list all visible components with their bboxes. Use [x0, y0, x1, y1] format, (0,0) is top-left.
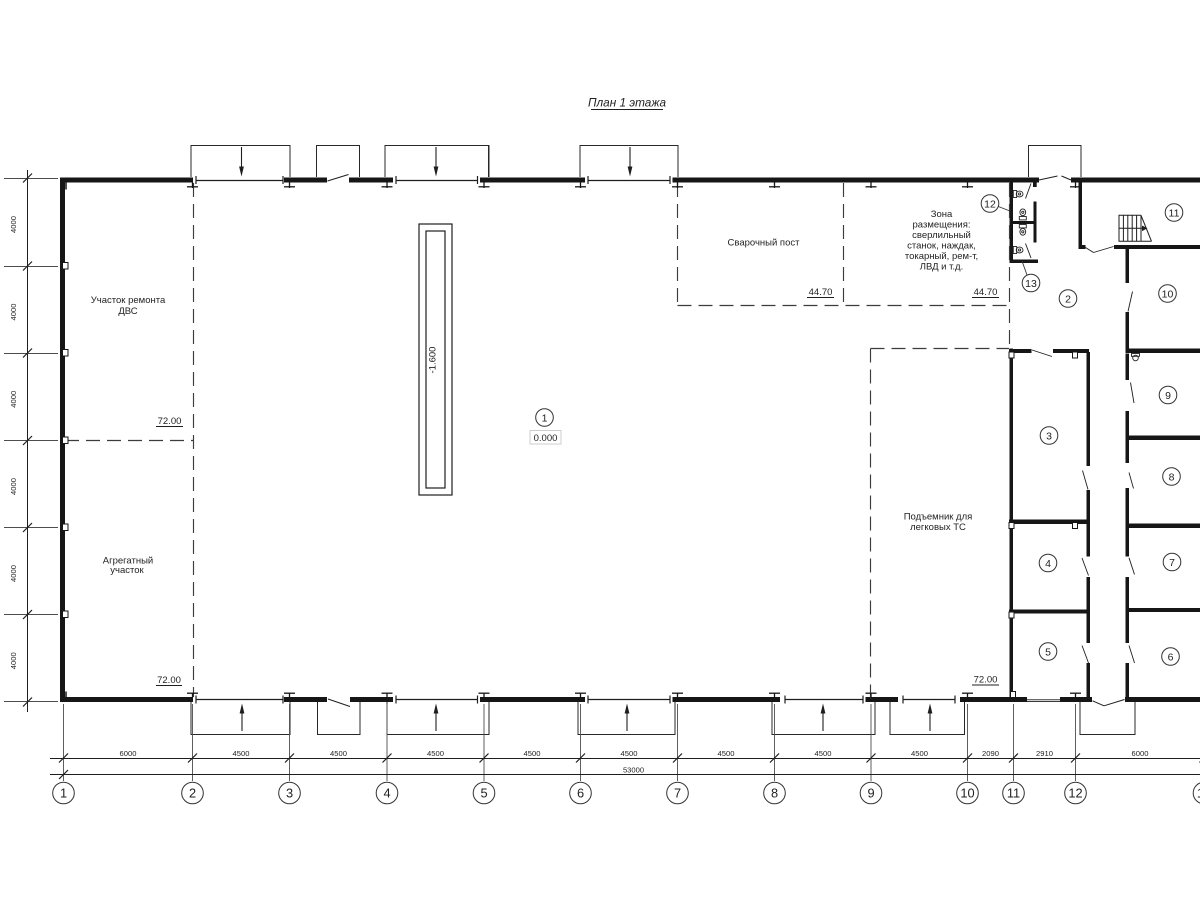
svg-text:72.00: 72.00 [158, 416, 182, 427]
svg-text:ДВС: ДВС [118, 306, 137, 317]
svg-text:4500: 4500 [233, 749, 250, 758]
svg-text:12: 12 [1068, 785, 1082, 800]
svg-text:3: 3 [1046, 430, 1052, 442]
svg-text:10: 10 [1162, 288, 1174, 300]
svg-text:4500: 4500 [815, 749, 832, 758]
svg-text:44.70: 44.70 [809, 287, 833, 298]
svg-text:6000: 6000 [1132, 749, 1149, 758]
svg-text:11: 11 [1007, 785, 1020, 800]
svg-text:4000: 4000 [9, 216, 18, 233]
svg-text:44.70: 44.70 [974, 287, 998, 298]
svg-text:1: 1 [60, 785, 67, 800]
svg-text:2910: 2910 [1036, 749, 1053, 758]
svg-text:10: 10 [960, 785, 974, 800]
svg-text:11: 11 [1169, 207, 1180, 219]
svg-text:2: 2 [189, 785, 196, 800]
svg-text:53000: 53000 [623, 766, 644, 775]
svg-text:Зона: Зона [931, 209, 953, 220]
svg-text:4000: 4000 [9, 565, 18, 582]
svg-text:5: 5 [1045, 646, 1051, 658]
svg-text:0.000: 0.000 [534, 433, 558, 444]
svg-text:4500: 4500 [911, 749, 928, 758]
svg-text:4000: 4000 [9, 304, 18, 321]
svg-text:легковых ТС: легковых ТС [910, 522, 966, 533]
svg-text:4000: 4000 [9, 478, 18, 495]
svg-text:4500: 4500 [330, 749, 347, 758]
svg-text:6: 6 [1168, 651, 1174, 663]
svg-text:5: 5 [480, 785, 487, 800]
svg-text:72.00: 72.00 [157, 675, 181, 686]
svg-text:8: 8 [1169, 471, 1175, 483]
svg-text:72.00: 72.00 [974, 675, 998, 686]
svg-text:Сварочный пост: Сварочный пост [728, 238, 801, 249]
svg-text:4500: 4500 [718, 749, 735, 758]
svg-text:6000: 6000 [120, 749, 137, 758]
svg-text:13: 13 [1025, 278, 1037, 290]
svg-text:4000: 4000 [9, 391, 18, 408]
svg-text:Подъемник для: Подъемник для [904, 512, 973, 523]
svg-text:7: 7 [1169, 557, 1175, 569]
svg-text:План 1 этажа: План 1 этажа [588, 96, 667, 110]
svg-text:7: 7 [674, 785, 681, 800]
svg-text:2: 2 [1065, 293, 1071, 305]
svg-text:размещения:: размещения: [913, 220, 971, 231]
svg-text:4: 4 [383, 785, 390, 800]
svg-text:1: 1 [542, 412, 548, 424]
svg-text:4500: 4500 [524, 749, 541, 758]
svg-text:сверлильный: сверлильный [912, 230, 971, 241]
svg-text:8: 8 [771, 785, 778, 800]
svg-text:Участок ремонта: Участок ремонта [91, 295, 166, 306]
svg-text:станок, наждак,: станок, наждак, [907, 241, 976, 252]
svg-text:9: 9 [1165, 390, 1171, 402]
svg-text:4500: 4500 [427, 749, 444, 758]
svg-text:3: 3 [286, 785, 293, 800]
svg-text:4500: 4500 [621, 749, 638, 758]
svg-text:токарный, рем-т,: токарный, рем-т, [905, 251, 978, 262]
svg-text:12: 12 [984, 198, 996, 210]
svg-text:4000: 4000 [9, 652, 18, 669]
svg-text:4: 4 [1045, 558, 1051, 570]
svg-text:2090: 2090 [982, 749, 999, 758]
svg-text:9: 9 [867, 785, 874, 800]
svg-text:-1.600: -1.600 [428, 347, 439, 374]
svg-text:6: 6 [577, 785, 584, 800]
svg-text:ЛВД и т.д.: ЛВД и т.д. [920, 262, 964, 273]
svg-text:участок: участок [110, 565, 144, 576]
